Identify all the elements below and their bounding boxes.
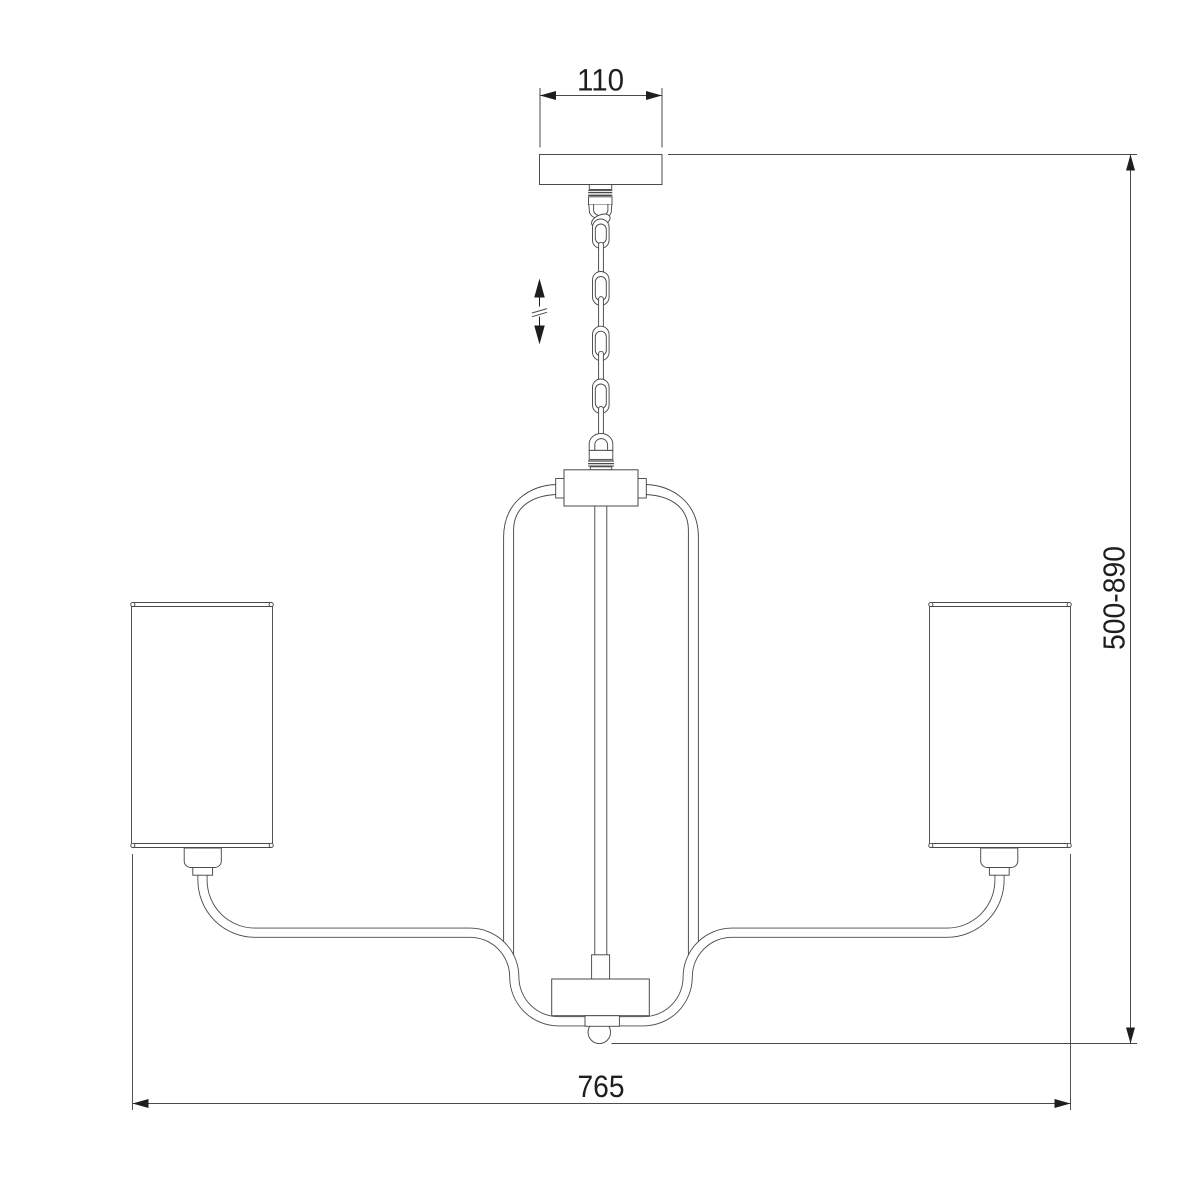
- svg-text:765: 765: [577, 1069, 624, 1104]
- svg-text:500-890: 500-890: [1097, 546, 1132, 650]
- svg-text:110: 110: [577, 62, 624, 97]
